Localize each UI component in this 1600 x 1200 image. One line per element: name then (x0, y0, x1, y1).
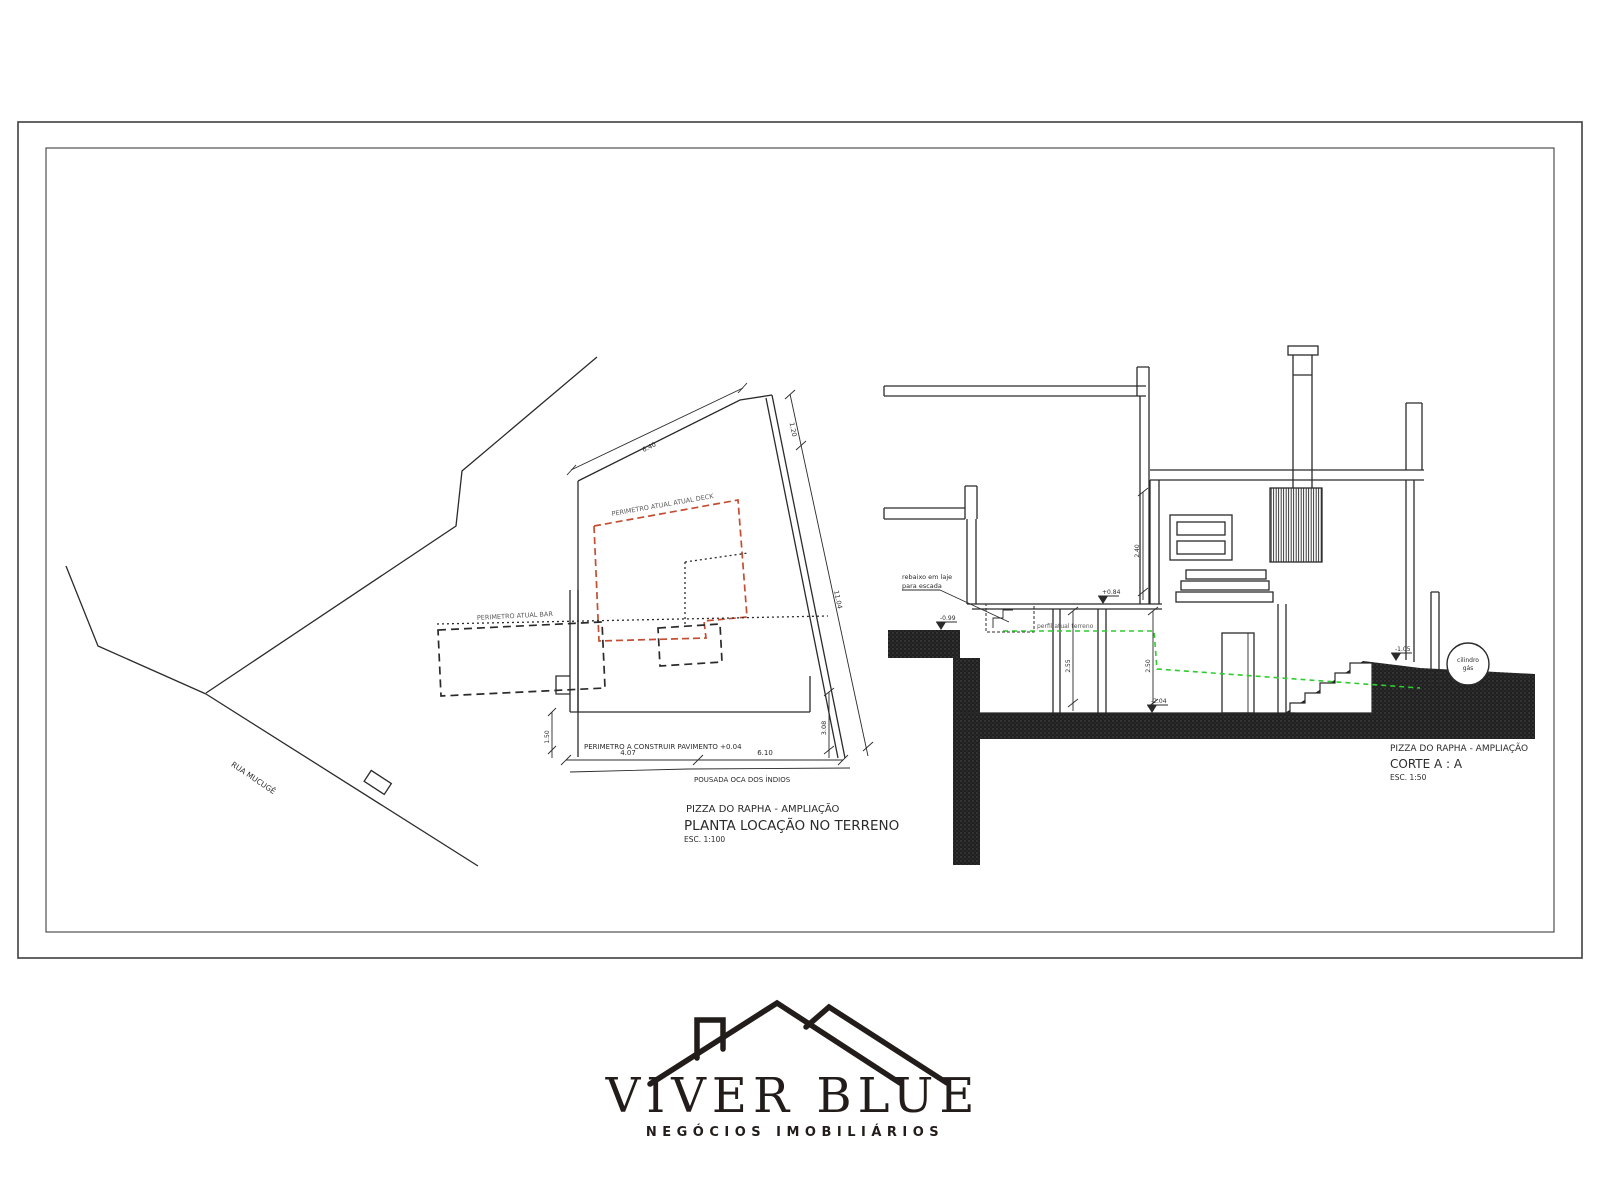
counter-steps (1176, 570, 1273, 602)
recess-label-2: para escada (902, 582, 942, 590)
logo: VIVER BLUE NEGÓCIOS IMOBILIÁRIOS (605, 1003, 981, 1140)
site-plan: RUA MUCUGÊ PERIMETRO A CONSTRUIR PAVIMEN… (66, 357, 899, 866)
lot-boundary (570, 395, 850, 772)
window-table (1170, 515, 1232, 560)
deck-outline (594, 500, 747, 641)
dim-left: 1.50 (544, 730, 551, 744)
street-name-label: RUA MUCUGÊ (230, 760, 278, 796)
dim-bottom-right: 6.10 (757, 749, 773, 757)
logo-tagline: NEGÓCIOS IMOBILIÁRIOS (646, 1124, 944, 1140)
svg-text:-0.99: -0.99 (940, 615, 956, 622)
section-subtitle: CORTE A : A (1390, 757, 1463, 771)
section-dimensions: 2.40 2.55 2.50 (1065, 488, 1158, 711)
exterior-stairs (1290, 663, 1372, 713)
dim-lower-left: 2.55 (1065, 659, 1072, 673)
recess-label-1: rebaixo em laje (902, 573, 952, 581)
perimeter-to-build: PERIMETRO A CONSTRUIR PAVIMENTO +0.04 (556, 590, 810, 751)
door (1222, 633, 1254, 713)
stair-recess-detail (940, 590, 1034, 632)
gas-label-2: gás (1463, 665, 1474, 672)
plan-scale: ESC. 1:100 (684, 835, 725, 844)
level-marker-ground-left: -0.99 (936, 615, 957, 630)
dim-upper-height: 2.40 (1134, 544, 1141, 558)
chimney (1293, 355, 1312, 488)
chimney-cap (1288, 346, 1318, 355)
gas-label-1: cilindro (1457, 657, 1479, 664)
bar-outline (438, 622, 605, 696)
recess-callout: rebaixo em laje para escada (902, 573, 952, 590)
pizza-oven (1270, 488, 1322, 562)
dim-right-upper: 1.20 (788, 422, 799, 438)
level-marker-deck: +0.84 (1098, 589, 1121, 604)
dim-bottom-left: 4.07 (620, 749, 636, 757)
annex-outline (658, 624, 722, 666)
plan-title: PIZZA DO RAPHA - AMPLIAÇÃO (686, 802, 840, 815)
svg-text:-1.05: -1.05 (1395, 646, 1411, 653)
svg-text:+0.84: +0.84 (1102, 589, 1121, 596)
parked-car-shape (364, 770, 391, 794)
architectural-sheet: RUA MUCUGÊ PERIMETRO A CONSTRUIR PAVIMEN… (0, 0, 1600, 1200)
perimeter-bar-label: PERIMETRO ATUAL BAR (477, 610, 554, 622)
ground-left-band (888, 630, 960, 658)
neighbor-label: POUSADA OCA DOS ÍNDIOS (694, 775, 791, 784)
dim-lower-right: 2.50 (1145, 659, 1152, 673)
dim-right-lower: 3.08 (820, 721, 828, 735)
level-marker-yard: -1.05 (1391, 646, 1412, 661)
plan-title-block: PIZZA DO RAPHA - AMPLIAÇÃO PLANTA LOCAÇÃ… (684, 802, 899, 844)
ground-left-column (953, 658, 980, 865)
plan-dimensions: 6.40 1.20 11.04 3.08 4.07 6.10 1.50 (544, 383, 873, 765)
logo-name: VIVER BLUE (605, 1068, 981, 1124)
ground-floor-band (958, 713, 1295, 739)
plan-subtitle: PLANTA LOCAÇÃO NO TERRENO (684, 817, 899, 834)
perimeter-deck: PERIMETRO ATUAL ATUAL DECK (594, 492, 747, 641)
perimeter-bar: PERIMETRO ATUAL BAR (438, 610, 722, 696)
perimeter-build-label: PERIMETRO A CONSTRUIR PAVIMENTO +0.04 (584, 743, 742, 751)
section-scale: ESC. 1:50 (1390, 773, 1427, 782)
terrain-label: perfil atual terreno (1037, 623, 1094, 630)
section-title: PIZZA DO RAPHA - AMPLIAÇÃO (1390, 743, 1528, 754)
section-drawing: cilindro gás perfil atual terreno rebaix… (884, 346, 1535, 865)
section-title-block: PIZZA DO RAPHA - AMPLIAÇÃO CORTE A : A E… (1390, 743, 1528, 782)
section-structure: cilindro gás (884, 346, 1489, 713)
